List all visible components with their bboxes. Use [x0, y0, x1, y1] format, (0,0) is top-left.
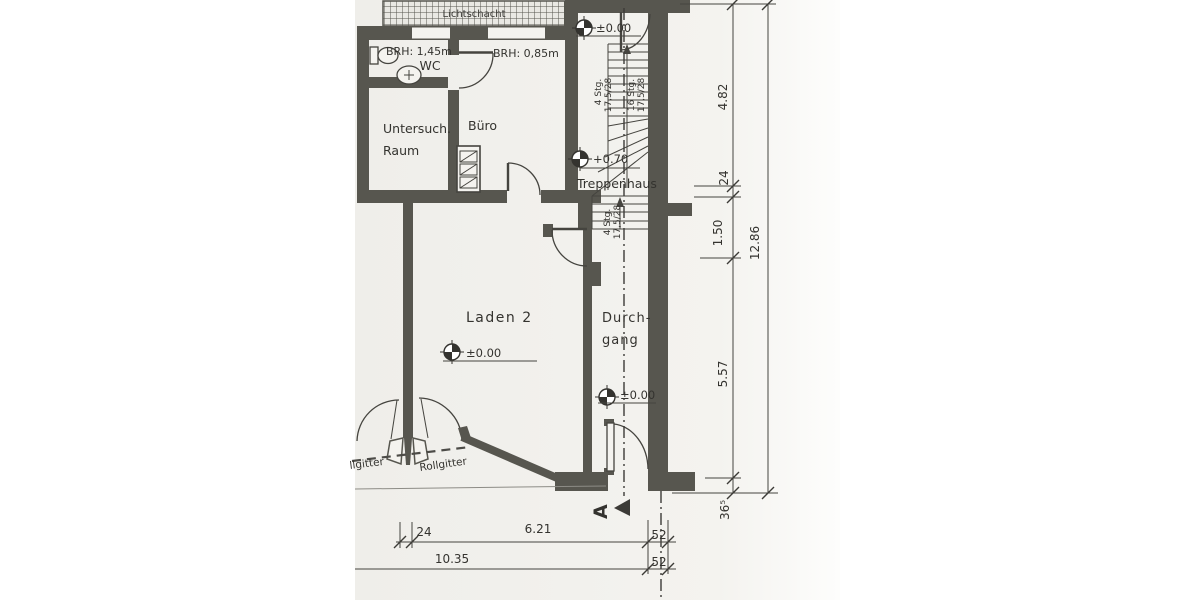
brh-buero-label: BRH: 0,85m: [493, 47, 559, 60]
brh-wc-label: BRH: 1,45m: [386, 45, 452, 58]
floorplan-drawing: Lichtschacht 4 Stg. 17,5/28: [0, 0, 1200, 600]
dim-bottom-total-1035: 10.35: [435, 552, 469, 566]
wall-left: [357, 26, 369, 202]
window-buero: [488, 28, 545, 39]
stair-upper-ratio: 17,5/28: [604, 77, 614, 112]
room-label-buero: Büro: [468, 118, 497, 133]
toilet-tank: [370, 47, 378, 64]
room-label-treppenhaus: Treppenhaus: [576, 176, 657, 191]
stair-upper-count: 4 Stg.: [594, 79, 604, 105]
radiator: [457, 146, 480, 192]
wall-mid-left: [357, 190, 507, 203]
window-wc: [412, 28, 450, 39]
dim-bottom-52-lower: 52: [651, 555, 666, 569]
dim-right-total-1286: 12.86: [748, 226, 762, 260]
room-label-durchgang-1: Durch-: [602, 311, 651, 326]
elevation-durchgang: ±0.00: [620, 388, 655, 402]
entrance-splay-left: [387, 438, 403, 464]
stair-lower-count: 4 Stg.: [603, 209, 613, 235]
entrance-splay-right: [413, 438, 428, 464]
room-label-durchgang-2: gang: [602, 333, 639, 348]
dim-bottom-24: 24: [416, 525, 431, 539]
dim-right-365: 36⁵: [718, 500, 732, 520]
stair-main-ratio: 17,5/28: [637, 77, 647, 112]
wall-bottom-right: [668, 472, 695, 491]
room-label-untersuch-2: Raum: [383, 143, 419, 158]
lichtschacht-shaft: Lichtschacht: [383, 1, 565, 26]
exit-door-leaf: [607, 423, 614, 471]
elevation-laden: ±0.00: [466, 346, 501, 360]
dim-right-24: 24: [717, 170, 731, 185]
wall-laden-left: [403, 192, 413, 438]
wall-bottom-left: [555, 472, 608, 491]
elevation-landing: +0.70: [593, 152, 628, 166]
wall-topright-block: [648, 0, 690, 13]
floorplan-page: Lichtschacht 4 Stg. 17,5/28: [0, 0, 1200, 600]
dim-right-557: 5.57: [716, 361, 730, 388]
dim-bottom-52-upper: 52: [651, 528, 666, 542]
elevation-entry: ±0.00: [596, 21, 631, 35]
dim-right-482: 4.82: [716, 84, 730, 111]
dim-right-150: 1.50: [711, 220, 725, 247]
stair-lower-ratio: 17,5/28: [613, 204, 623, 239]
lichtschacht-label: Lichtschacht: [442, 9, 505, 20]
wall-main-right: [648, 0, 668, 491]
wall-right-stub: [668, 203, 692, 216]
stair-main-count: 16 Stg.: [627, 79, 637, 111]
section-label: A: [590, 504, 612, 519]
room-label-untersuch-1: Untersuch.: [383, 121, 451, 136]
dim-bottom-621: 6.21: [525, 522, 552, 536]
room-label-laden: Laden 2: [466, 310, 533, 326]
wall-stairhall-sw: [578, 191, 592, 229]
room-label-wc: WC: [419, 58, 440, 73]
